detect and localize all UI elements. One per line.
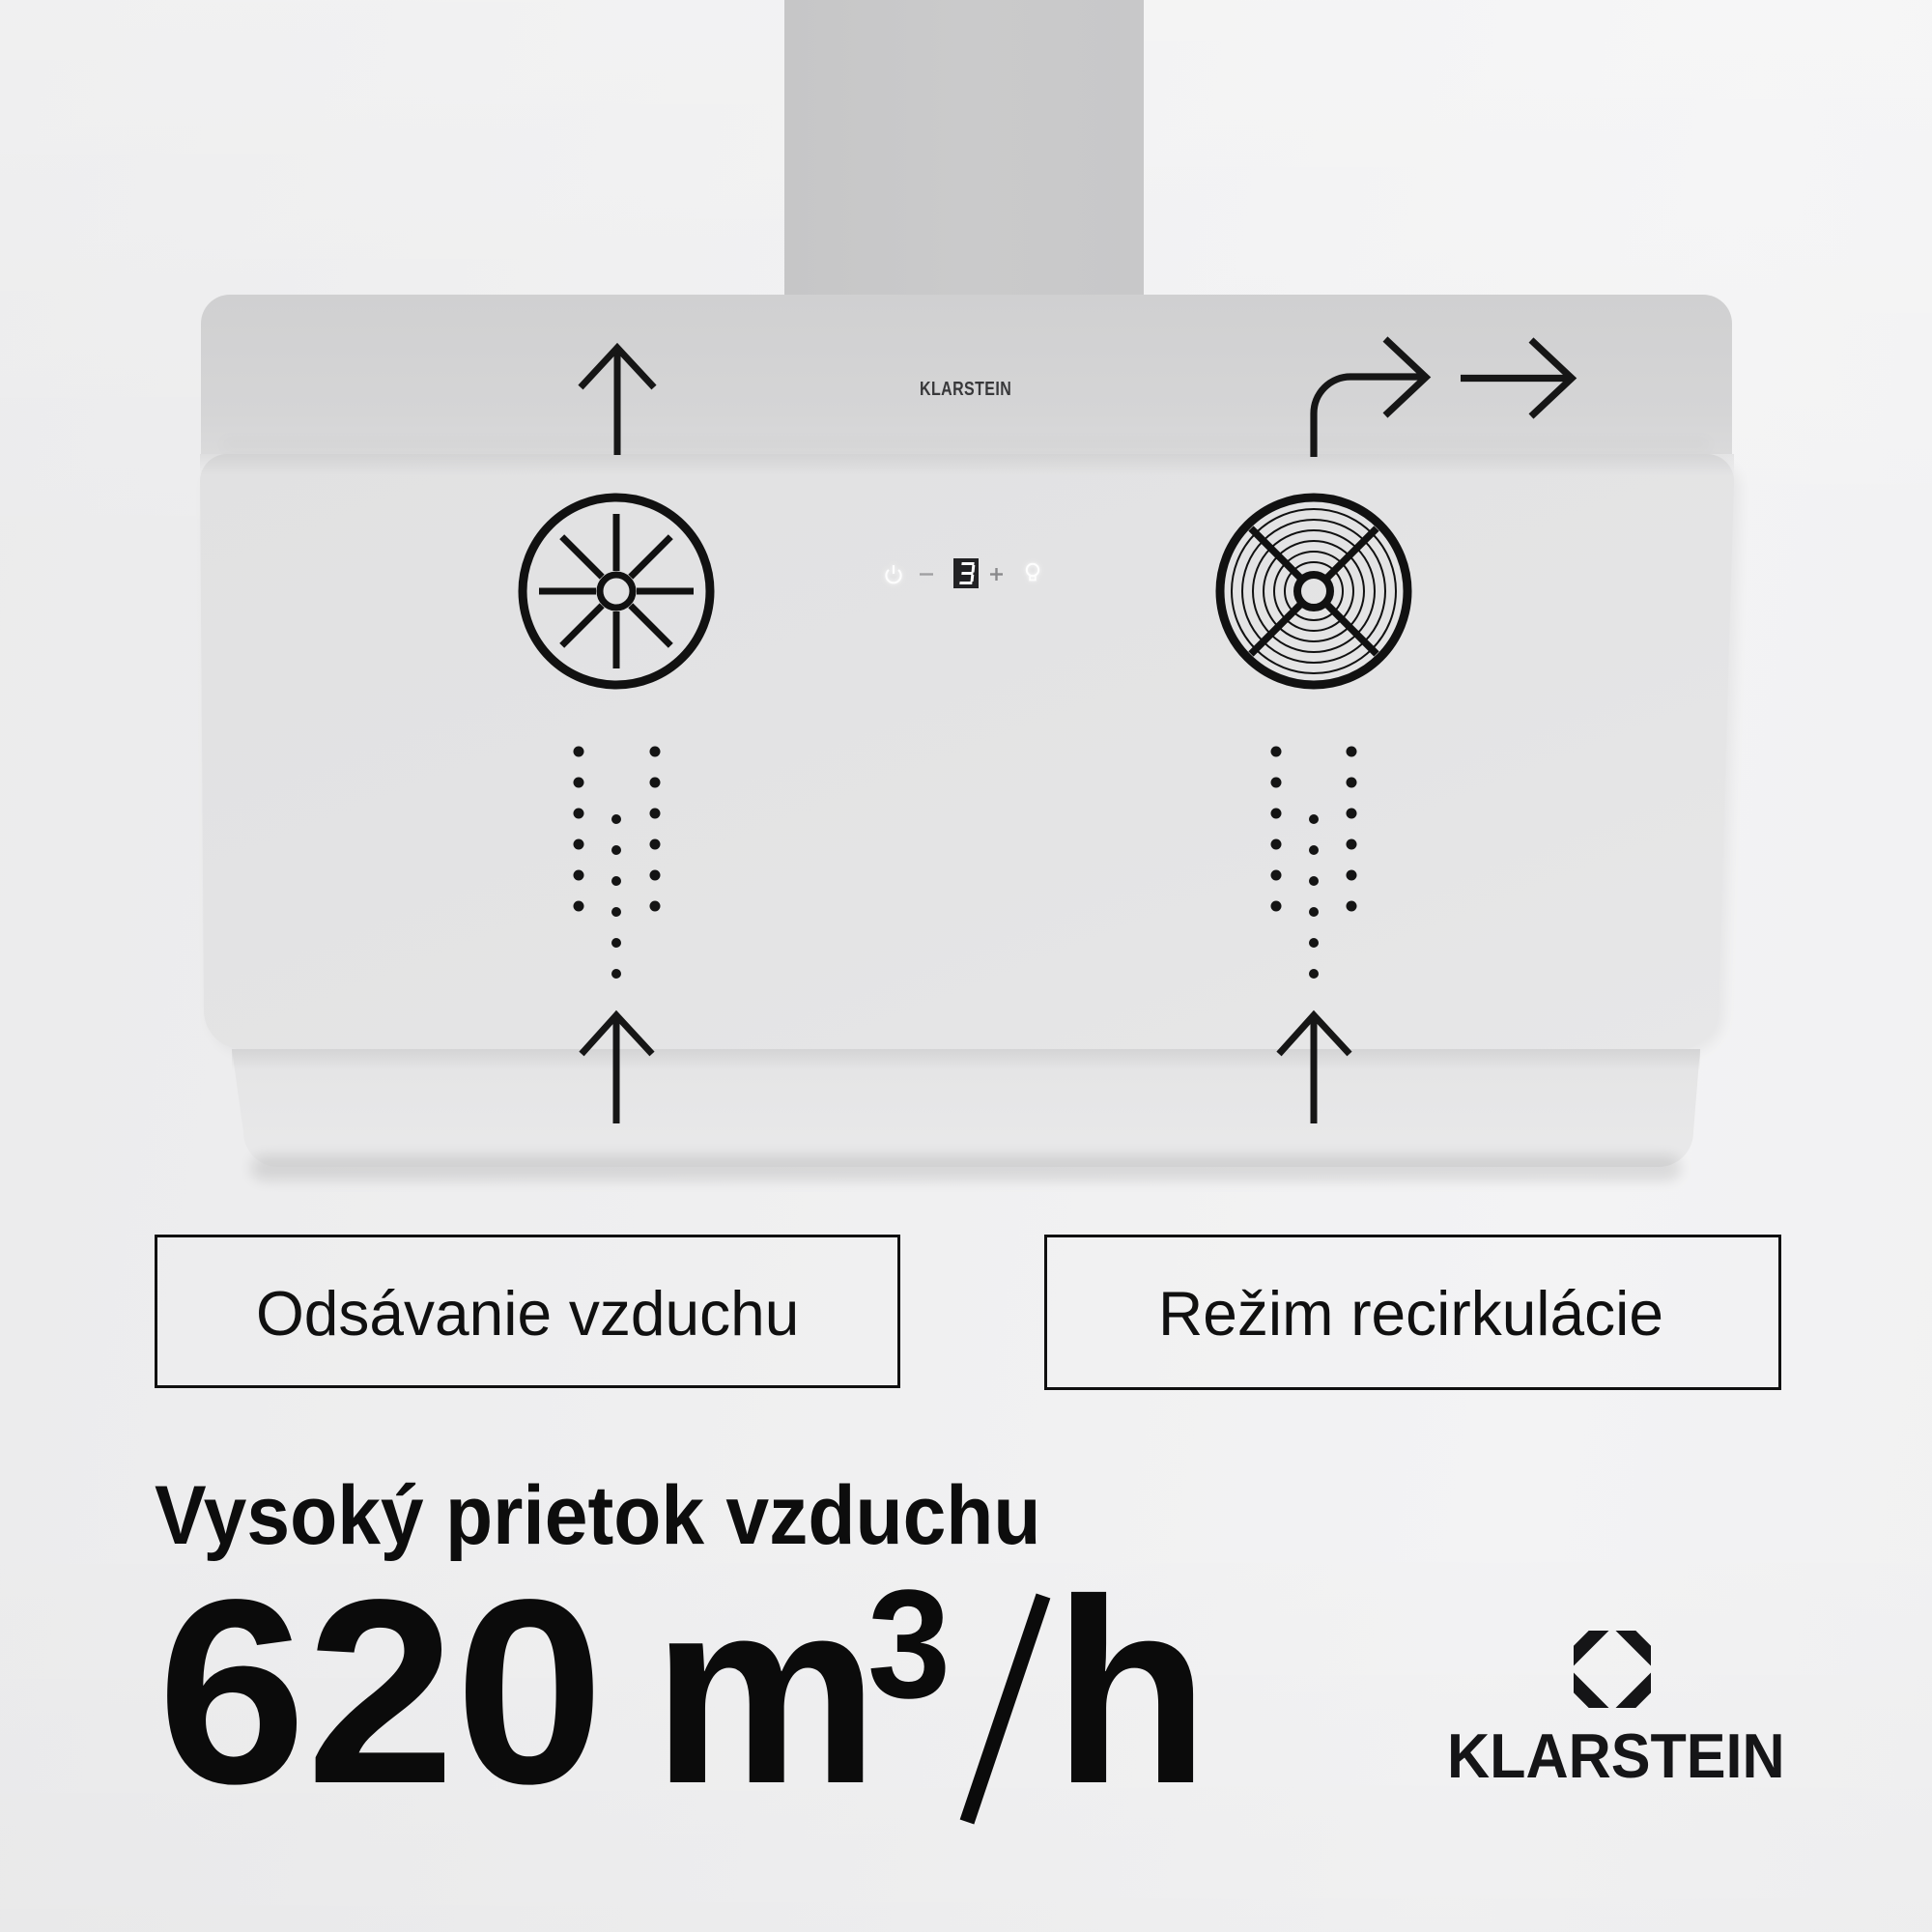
svg-text:KLARSTEIN: KLARSTEIN [920, 378, 1011, 399]
